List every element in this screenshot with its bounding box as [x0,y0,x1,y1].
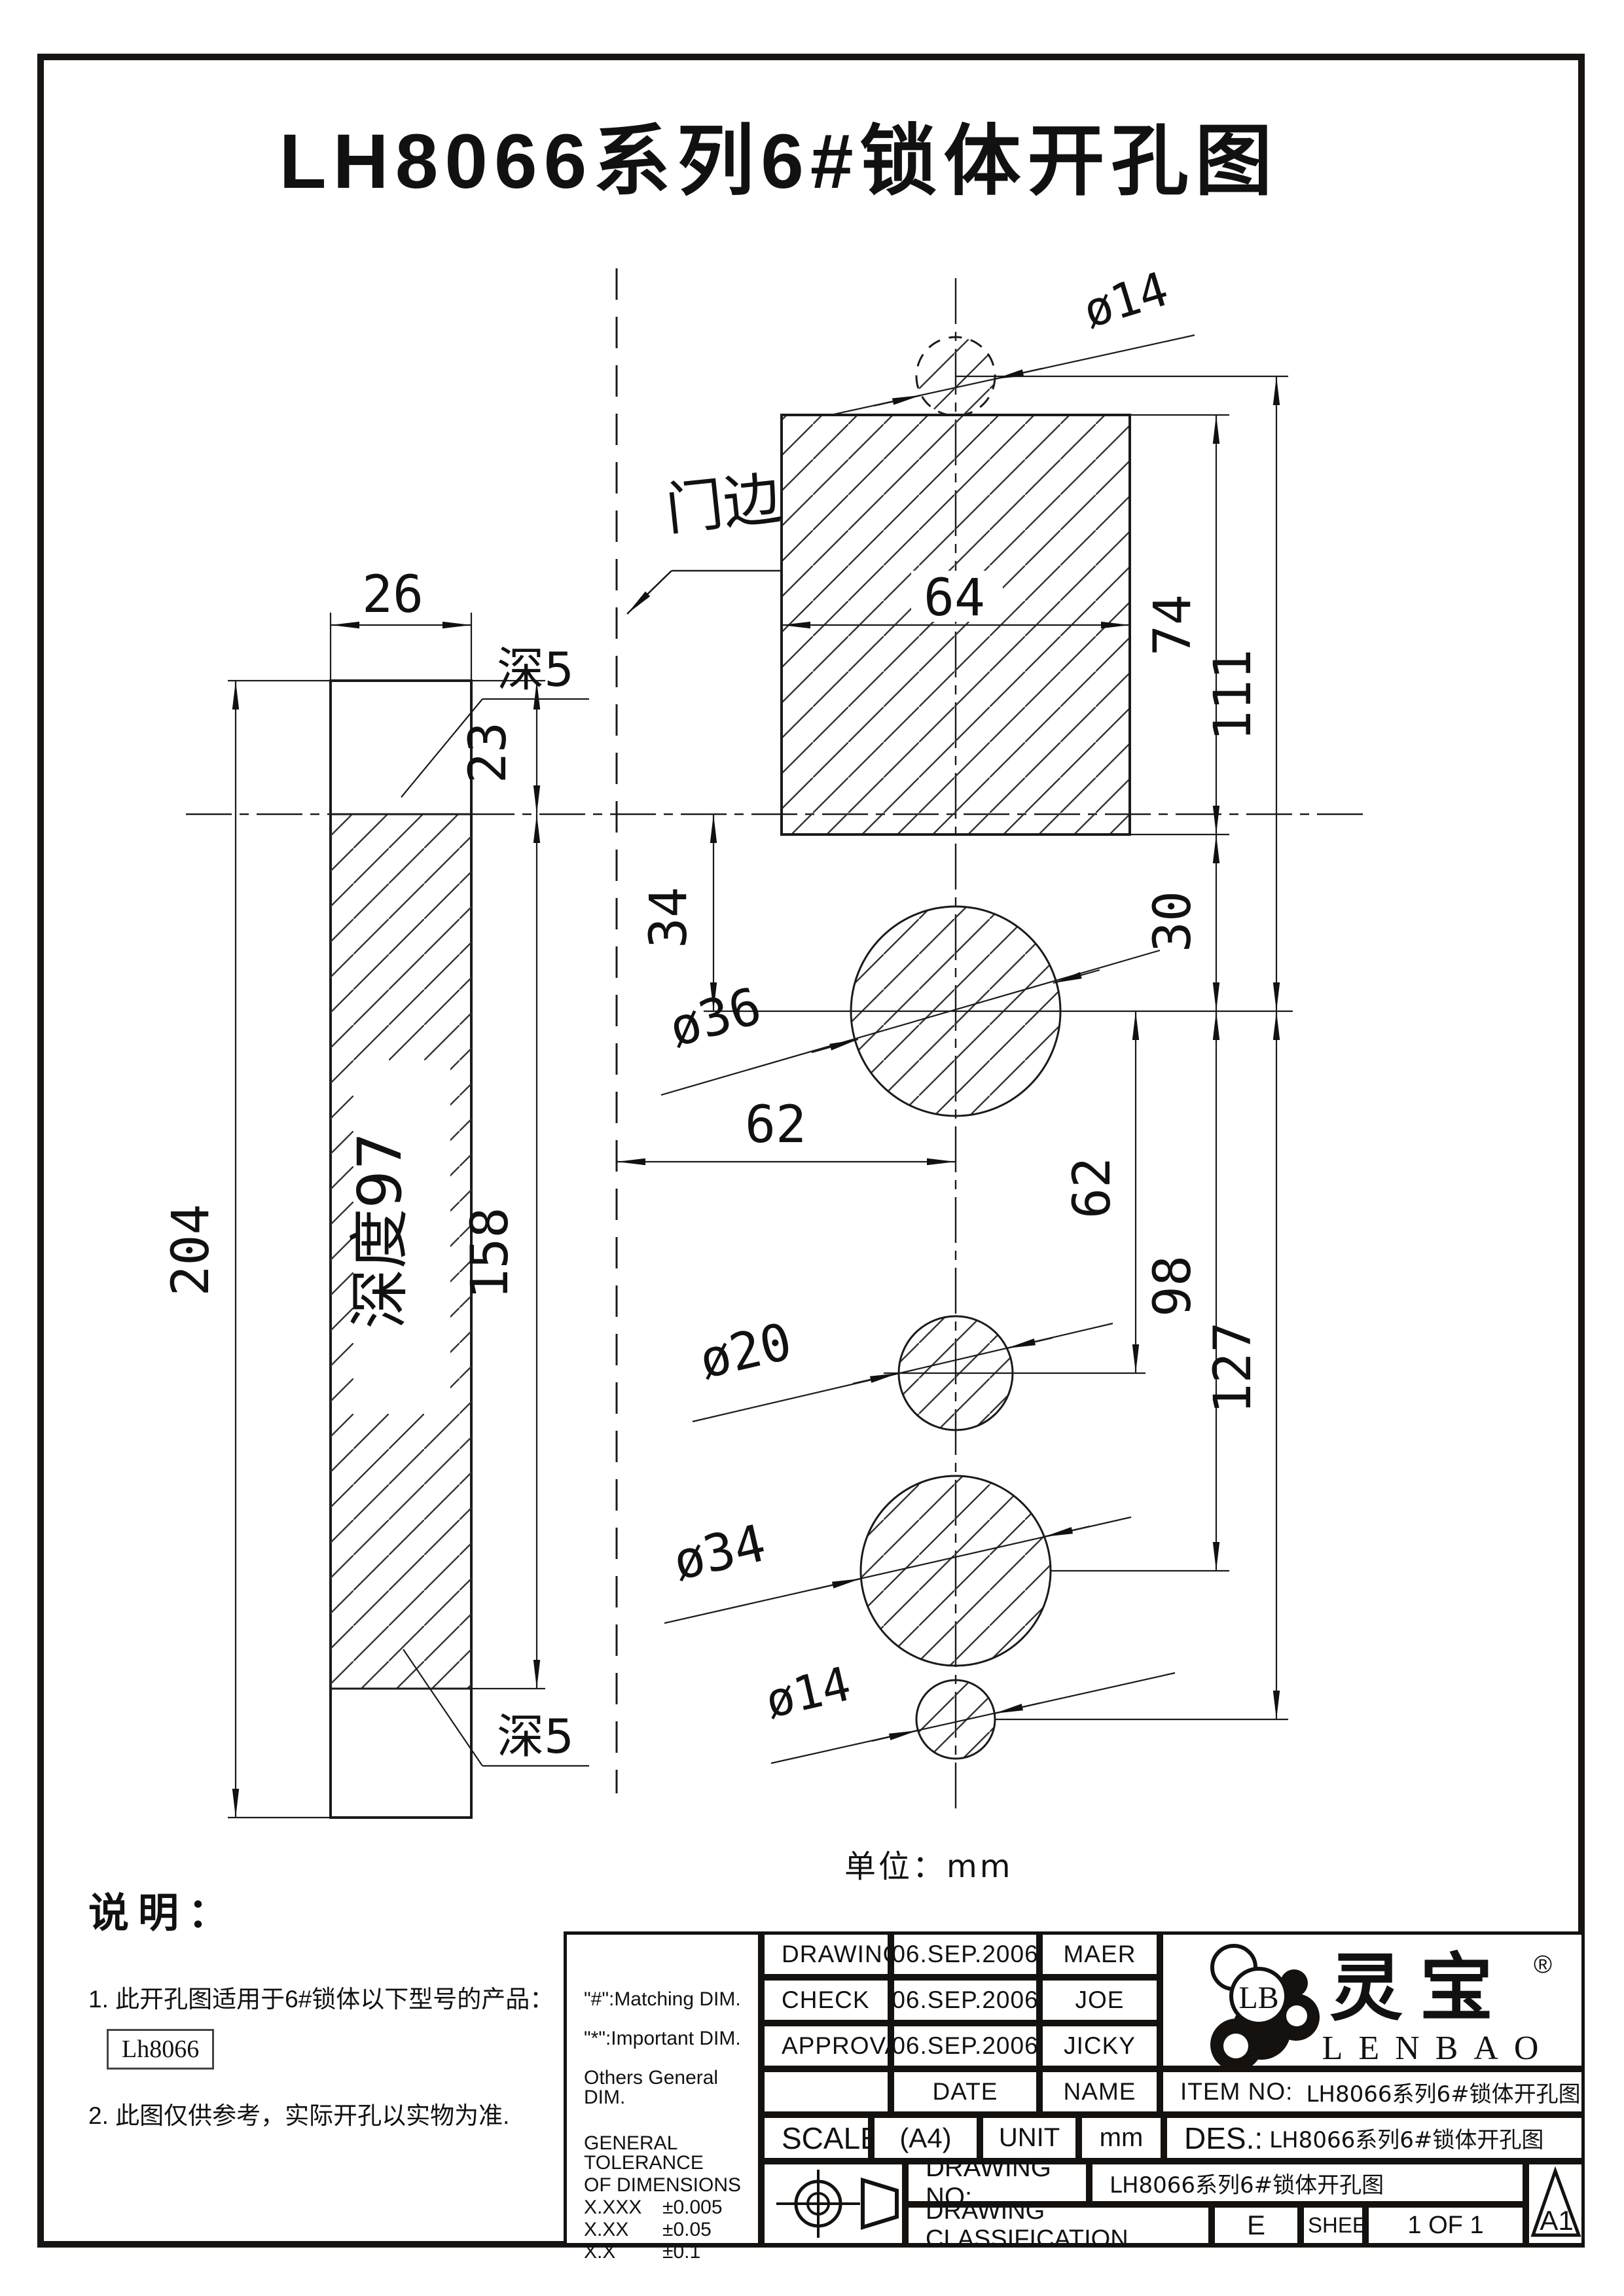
sheet-label-cell: SHEET [1301,2204,1365,2246]
tolerance-title-1: GENERAL TOLERANCE [584,2134,758,2173]
format-triangle-icon: A1 [1529,2164,1581,2243]
hole-dia34 [861,1476,1051,1666]
depth5-top-label: 深5 [497,642,574,697]
dim-label-23: 23 [459,722,518,783]
unit-value-cell: mm [1079,2115,1164,2161]
approval-row-label: APPROVAL [761,2023,891,2069]
sheet-value-cell: 1 OF 1 [1365,2204,1526,2246]
check-row-label: CHECK [761,1977,891,2023]
dia-label-20: ø20 [694,1312,797,1390]
drawing-sheet: LH8066系列6#锁体开孔图 [0,0,1624,2296]
item-no-value: LH8066系列6#锁体开孔图 [1306,2076,1580,2108]
depth5-bottom-label: 深5 [497,1709,574,1764]
dim-label-26: 26 [362,565,424,624]
tolerance-row: X.XXX±0.005 [584,2198,758,2217]
dia-label-14-bottom: ø14 [761,1656,856,1729]
logo-monogram: LB [1238,1981,1278,2015]
tolerance-title-2: OF DIMENSIONS [584,2176,758,2195]
unit-note: 单位：mm [844,1840,1013,1886]
side-note-matching: "#":Matching DIM. [584,1990,758,2009]
empty-cell [761,2069,891,2115]
dim-label-34: 34 [640,887,698,948]
registered-mark-icon: ® [1534,1951,1552,1979]
des-label: DES.: [1184,2121,1263,2156]
notes-heading: 说明： [88,1880,560,1939]
side-note-general: Others General DIM. [584,2068,758,2108]
classification-value-cell: E [1212,2204,1301,2246]
format-code-cell: A1 [1526,2161,1585,2246]
item-no-label: ITEM NO: [1180,2078,1293,2106]
drawing-row-name: MAER [1039,1931,1160,1977]
note-item-1: 1. 此开孔图适用于6#锁体以下型号的产品： [88,1979,560,2015]
dim-label-98: 98 [1144,1255,1202,1317]
dim-label-62h: 62 [745,1096,806,1155]
tolerance-row: X.XX±0.05 [584,2220,758,2240]
classification-label-cell: DRAWING CLASSIFICATION [905,2204,1212,2246]
des-value: LH8066系列6#锁体开孔图 [1269,2122,1543,2154]
drawing-row-date: 06.SEP.2006 [891,1931,1039,1977]
titleblock-side-notes-cell: "#":Matching DIM. "*":Important DIM. Oth… [564,1931,761,2246]
drawing-row-label: DRAWING [761,1931,891,1977]
dim-label-64: 64 [924,569,985,628]
first-angle-projection-icon [765,2164,902,2243]
check-row-date: 06.SEP.2006 [891,1977,1039,2023]
notes-block: 说明： 1. 此开孔图适用于6#锁体以下型号的产品： Lh8066 2. 此图仅… [88,1880,560,2131]
check-row-name: JOE [1039,1977,1160,2023]
door-edge-label: 门边 [662,464,784,543]
dim-label-74: 74 [1144,594,1202,656]
dim-label-62v: 62 [1063,1157,1122,1219]
approval-row-date: 06.SEP.2006 [891,2023,1039,2069]
brand-logo-cell: LB 灵宝 ® LENBAO [1160,1931,1585,2069]
name-header-cell: NAME [1039,2069,1160,2115]
hole-bottom-dia14 [916,1680,995,1759]
dim-label-204: 204 [162,1204,221,1297]
dim-label-158: 158 [461,1208,520,1300]
des-cell: DES.: LH8066系列6#锁体开孔图 [1164,2115,1585,2161]
dim-label-30: 30 [1144,891,1202,952]
dia-label-34: ø34 [668,1514,771,1592]
brand-name-cn: 灵宝 [1329,1946,1510,2031]
brand-name-en: LENBAO [1322,2030,1555,2066]
depth97-label: 深度97 [345,1132,415,1329]
tolerance-row: X.X±0.1 [584,2242,758,2262]
note-item-2: 2. 此图仅供参考，实际开孔以实物为准. [88,2096,560,2131]
date-header-cell: DATE [891,2069,1039,2115]
projection-symbol-cell [761,2161,905,2246]
dia-label-14-top: ø14 [1077,261,1174,338]
dia-label-36: ø36 [663,977,768,1058]
format-code: A1 [1540,2205,1573,2236]
dim-label-111: 111 [1204,649,1263,742]
side-note-important: "*":Important DIM. [584,2029,758,2049]
approval-row-name: JICKY [1039,2023,1160,2069]
model-number-box: Lh8066 [107,2029,214,2070]
lenbao-logo-icon: LB 灵宝 ® LENBAO [1163,1935,1581,2066]
item-no-cell: ITEM NO: LH8066系列6#锁体开孔图 [1160,2069,1585,2115]
scale-label-cell: SCALE [761,2115,871,2161]
dim-label-127: 127 [1204,1322,1263,1414]
